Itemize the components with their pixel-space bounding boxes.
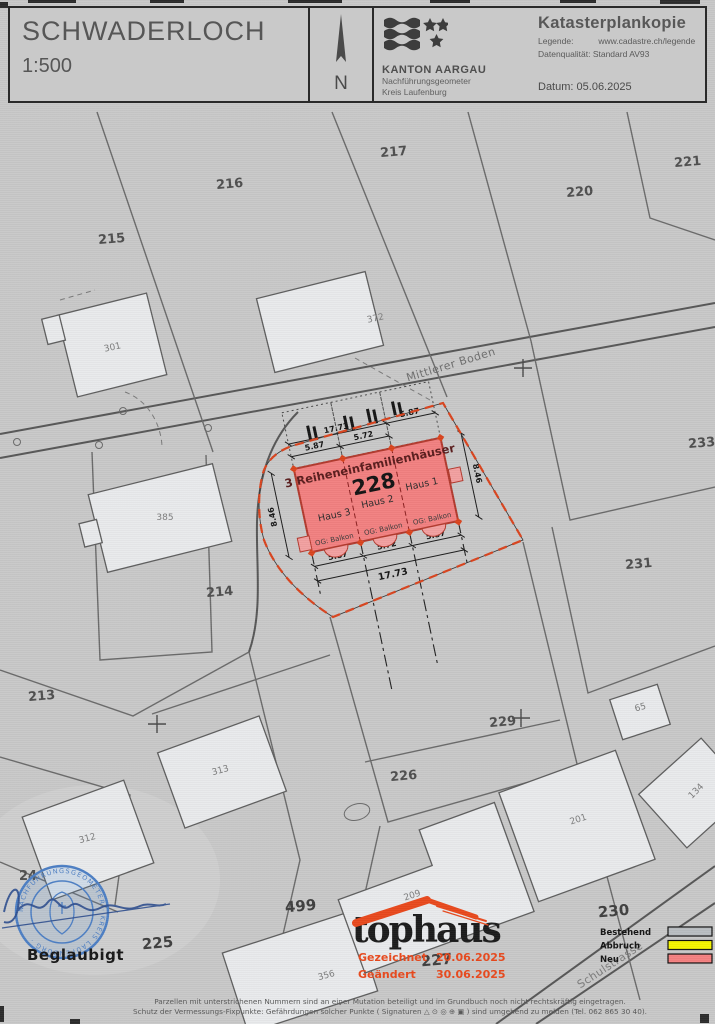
parcel-label: 220 (566, 184, 594, 201)
building-label: 385 (156, 513, 173, 523)
color-legend: Bestehend Abbruch Neu (600, 927, 712, 965)
parcel-label: 216 (216, 176, 244, 193)
certified-label: Beglaubigt (27, 946, 124, 964)
parcel-label: 499 (284, 896, 317, 917)
doc-title: Katasterplankopie (538, 14, 697, 33)
svg-text:8.46: 8.46 (471, 463, 484, 485)
legend-label: Neu (600, 955, 619, 965)
plan-title: SCHWADERLOCH (22, 16, 296, 47)
survey-cross (148, 715, 166, 733)
legend-label: Abbruch (600, 942, 640, 952)
date-label: Datum: (538, 81, 573, 93)
parcel-label: 215 (98, 231, 126, 248)
parcel-label: 233 (688, 435, 715, 452)
building-label: 372 (366, 312, 385, 325)
changed-date: 30.06.2025 (436, 968, 506, 981)
legend-swatch-abbruch (668, 941, 712, 950)
parcel-label: 229 (489, 714, 517, 731)
parcel-label: 213 (28, 688, 56, 705)
svg-text:17.73: 17.73 (377, 566, 409, 583)
office-line-1: Nachführungsgeometer (382, 76, 534, 87)
date-row: Datum: 05.06.2025 (538, 81, 697, 95)
north-label: N (334, 74, 348, 93)
parcel-label: 214 (206, 584, 234, 601)
parcel-label: 221 (674, 154, 702, 171)
plan-title-box: SCHWADERLOCH 1:500 (8, 6, 310, 103)
parcel-label: 225 (141, 933, 174, 954)
title-block: SCHWADERLOCH 1:500 N KANTON AARGAU Nachf… (8, 6, 707, 103)
canton-name: KANTON AARGAU (382, 64, 534, 76)
parcel-label: 231 (625, 556, 653, 573)
parcel-label: 230 (597, 901, 630, 922)
legend-label: Legende: (538, 36, 596, 46)
parcel-label: 226 (390, 768, 418, 785)
copy-block: Katasterplankopie Legende: www.cadastre.… (534, 14, 697, 95)
kanton-aargau-logo-icon (382, 14, 448, 56)
north-box: N (308, 6, 374, 103)
footer-note-1: Parzellen mit unterstrichenen Nummern si… (154, 997, 626, 1006)
legend-swatch-bestehend (668, 927, 712, 936)
north-arrow-icon (328, 12, 354, 74)
svg-text:8.46: 8.46 (266, 506, 279, 528)
office-line-2: Kreis Laufenburg (382, 87, 534, 98)
info-box: KANTON AARGAU Nachführungsgeometer Kreis… (372, 6, 707, 103)
plan-scale: 1:500 (22, 55, 296, 78)
canton-block: KANTON AARGAU Nachführungsgeometer Kreis… (382, 14, 534, 95)
drawn-label: Gezeichnet (358, 951, 427, 964)
footer-note-2: Schutz der Vermessungs-Fixpunkte: Gefähr… (133, 1007, 647, 1016)
changed-label: Geändert (358, 968, 416, 981)
parcel-label: 217 (380, 144, 408, 161)
quality-row: Datenqualität: Standard AV93 (538, 49, 697, 59)
site-parcel-228: 17.73 5.87 5.87 5.72 5.87 5.72 5.87 17.7… (248, 375, 523, 709)
legend-swatch-neu (668, 954, 712, 963)
cadastral-map: Mittlerer Boden Schulstrasse (0, 0, 715, 1024)
legend-label: Bestehend (600, 928, 651, 938)
date-value: 05.06.2025 (577, 81, 632, 93)
legend-url: www.cadastre.ch/legende (598, 36, 695, 46)
drawn-date: 20.06.2025 (436, 951, 506, 964)
cadastral-plan-page: Mittlerer Boden Schulstrasse (0, 0, 715, 1024)
legend-row: Legende: www.cadastre.ch/legende (538, 36, 697, 46)
